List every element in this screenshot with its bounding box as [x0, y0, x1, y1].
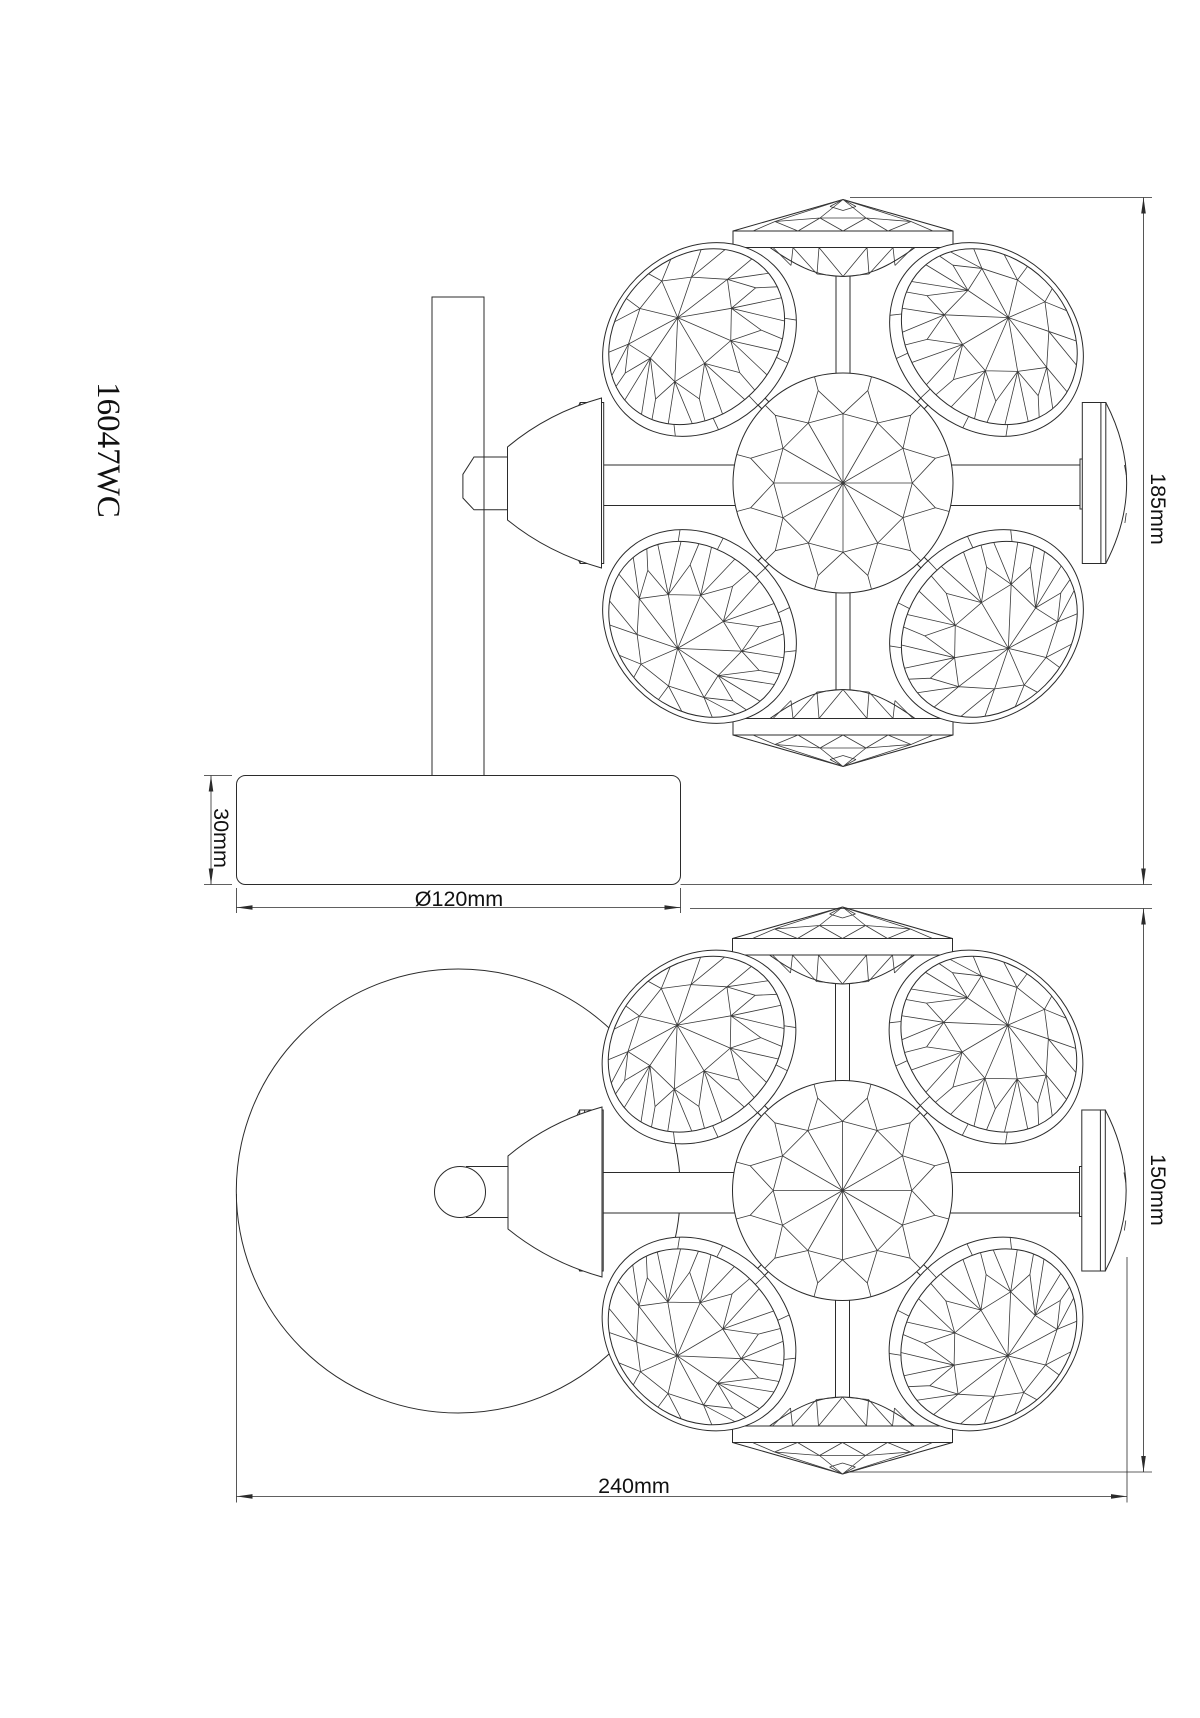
svg-text:185mm: 185mm: [1146, 473, 1170, 545]
svg-text:240mm: 240mm: [598, 1474, 670, 1498]
svg-text:30mm: 30mm: [209, 808, 233, 868]
svg-text:Ø120mm: Ø120mm: [415, 887, 503, 911]
svg-text:16047WC: 16047WC: [90, 382, 126, 518]
svg-text:150mm: 150mm: [1146, 1154, 1170, 1226]
